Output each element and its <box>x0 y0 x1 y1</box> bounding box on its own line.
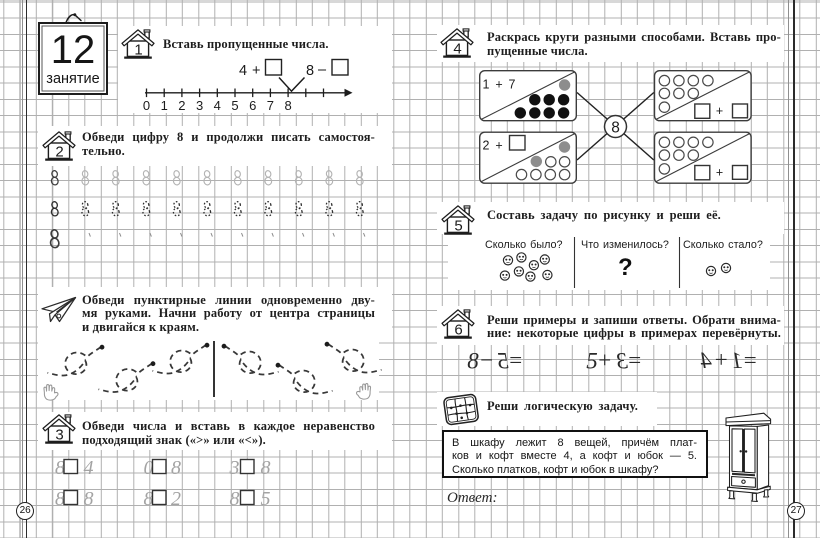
svg-text:8: 8 <box>171 457 181 479</box>
svg-text:8: 8 <box>467 349 479 374</box>
svg-text:5: 5 <box>231 98 238 113</box>
svg-text:+: + <box>716 104 723 118</box>
svg-text:8: 8 <box>306 63 314 79</box>
svg-text:=: = <box>742 348 758 373</box>
svg-text:5: 5 <box>454 218 462 235</box>
svg-text:2: 2 <box>171 488 181 510</box>
svg-text:4: 4 <box>214 98 221 113</box>
svg-text:8: 8 <box>284 98 291 113</box>
svg-text:=: = <box>627 348 643 373</box>
svg-text:8: 8 <box>261 457 271 479</box>
svg-text:−: − <box>479 348 495 373</box>
svg-text:6: 6 <box>249 98 256 113</box>
svg-text:4: 4 <box>239 63 247 79</box>
svg-text:5: 5 <box>261 488 271 510</box>
svg-text:7: 7 <box>267 98 274 113</box>
svg-text:2: 2 <box>55 144 63 161</box>
svg-text:2: 2 <box>483 139 490 153</box>
svg-text:3: 3 <box>616 349 629 374</box>
svg-text:+: + <box>252 63 260 79</box>
svg-text:–: – <box>318 62 327 78</box>
svg-text:8: 8 <box>230 488 240 510</box>
svg-text:4: 4 <box>84 457 94 479</box>
svg-text:1: 1 <box>161 98 168 113</box>
svg-text:1: 1 <box>731 348 743 373</box>
svg-text:=: = <box>508 348 524 373</box>
svg-text:7: 7 <box>509 78 516 92</box>
svg-text:0: 0 <box>143 98 150 113</box>
svg-text:+: + <box>597 348 613 373</box>
svg-text:+: + <box>495 78 502 92</box>
svg-text:2: 2 <box>178 98 185 113</box>
svg-text:4: 4 <box>700 348 712 373</box>
svg-text:6: 6 <box>454 322 462 339</box>
svg-text:1: 1 <box>483 78 490 92</box>
svg-text:3: 3 <box>229 457 240 479</box>
svg-text:8: 8 <box>611 120 620 137</box>
svg-text:3: 3 <box>55 427 63 444</box>
svg-text:3: 3 <box>196 98 203 113</box>
svg-text:8: 8 <box>84 488 94 510</box>
svg-text:1: 1 <box>134 42 142 59</box>
svg-text:+: + <box>713 347 729 372</box>
svg-text:+: + <box>716 166 723 180</box>
svg-text:+: + <box>495 139 502 153</box>
svg-text:5: 5 <box>497 349 509 374</box>
svg-text:4: 4 <box>453 41 461 58</box>
